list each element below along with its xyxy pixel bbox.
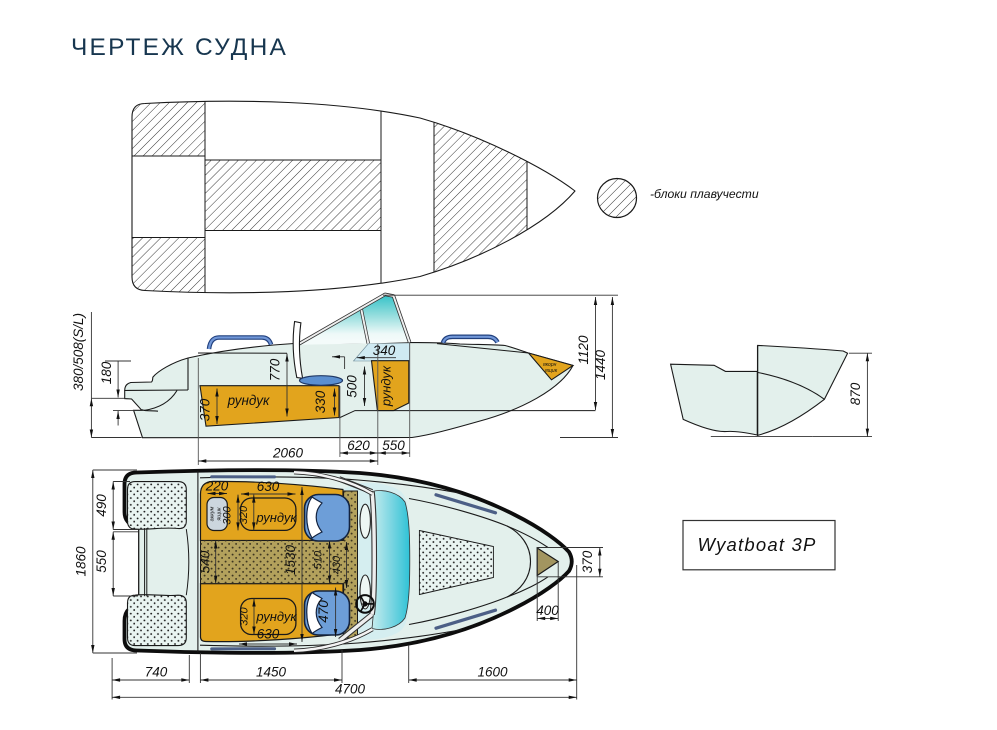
- svg-text:430: 430: [331, 555, 343, 574]
- svg-text:Wyatboat 3P: Wyatboat 3P: [697, 534, 816, 555]
- svg-text:740: 740: [145, 665, 168, 680]
- svg-text:500: 500: [345, 375, 360, 398]
- svg-text:1450: 1450: [256, 665, 287, 680]
- svg-text:1440: 1440: [593, 349, 608, 380]
- svg-text:550: 550: [94, 550, 109, 573]
- svg-text:490: 490: [94, 494, 109, 517]
- svg-text:320: 320: [238, 505, 250, 524]
- svg-text:220: 220: [205, 479, 229, 494]
- svg-text:рундук: рундук: [255, 609, 297, 624]
- svg-text:300: 300: [222, 505, 234, 524]
- svg-text:370: 370: [198, 398, 213, 421]
- svg-text:870: 870: [848, 382, 863, 405]
- svg-text:340: 340: [373, 343, 396, 358]
- svg-text:400: 400: [536, 603, 559, 618]
- svg-text:-блоки плавучести: -блоки плавучести: [650, 187, 759, 201]
- svg-text:770: 770: [268, 358, 283, 381]
- svg-text:380/508(S/L): 380/508(S/L): [71, 313, 86, 391]
- svg-text:620: 620: [347, 438, 370, 453]
- svg-text:1600: 1600: [477, 665, 508, 680]
- svg-text:540: 540: [198, 550, 213, 573]
- svg-text:рундук: рундук: [379, 365, 394, 407]
- svg-text:2060: 2060: [272, 446, 304, 461]
- svg-text:180: 180: [99, 361, 114, 384]
- svg-text:330: 330: [313, 390, 328, 413]
- svg-text:630: 630: [257, 479, 280, 494]
- svg-text:ящик: ящик: [544, 368, 558, 374]
- svg-text:ЧЕРТЕЖ СУДНА: ЧЕРТЕЖ СУДНА: [71, 34, 288, 61]
- svg-text:рундук: рундук: [255, 510, 297, 525]
- svg-text:320: 320: [239, 606, 251, 625]
- svg-text:1120: 1120: [576, 335, 591, 365]
- svg-text:рундук: рундук: [227, 393, 270, 408]
- svg-text:370: 370: [580, 550, 595, 573]
- svg-text:630: 630: [257, 627, 280, 642]
- svg-text:550: 550: [382, 438, 405, 453]
- svg-text:4700: 4700: [335, 682, 366, 697]
- svg-text:510: 510: [313, 550, 325, 569]
- svg-text:аккум: аккум: [210, 506, 216, 521]
- svg-text:1530: 1530: [283, 544, 298, 575]
- svg-text:470: 470: [316, 600, 331, 623]
- svg-text:1860: 1860: [74, 546, 89, 577]
